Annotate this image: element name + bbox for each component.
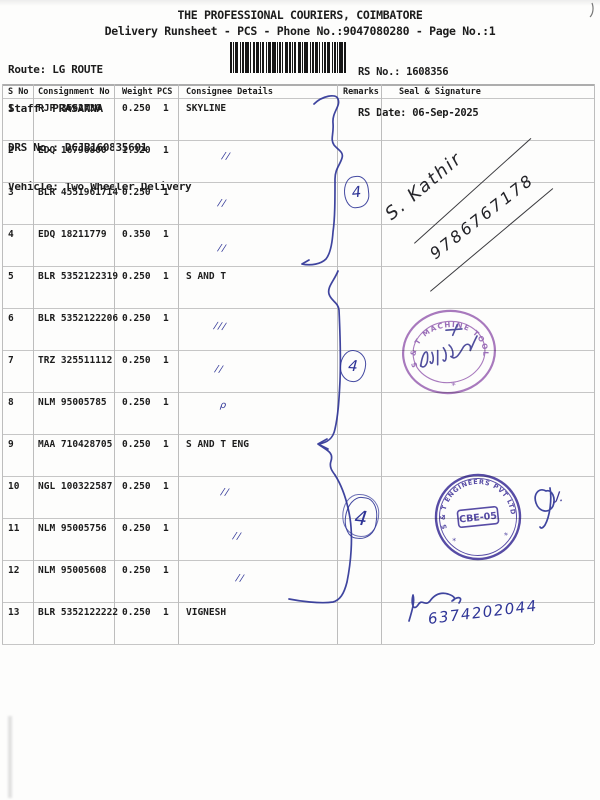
barcode-bar: [260, 42, 261, 73]
table-row: 5BLR 53521223190.2501S AND T: [0, 266, 600, 308]
table-row: 6BLR 53521222060.2501///: [0, 308, 600, 350]
column-header: Remarks: [343, 87, 379, 97]
barcode-bar: [230, 42, 232, 73]
table-row: 11NLM 950057560.2501//: [0, 518, 600, 560]
ditto-mark: //: [217, 243, 227, 255]
barcode-bar: [298, 42, 301, 73]
cell-consignee: S AND T ENG: [186, 439, 249, 450]
ditto-mark: //: [214, 364, 224, 376]
cell-weight: 0.250: [122, 271, 151, 282]
barcode-bar: [332, 42, 333, 73]
cell-pcs: 1: [163, 313, 169, 324]
cell-pcs: 1: [163, 481, 169, 492]
barcode-bar: [233, 42, 234, 73]
cell-weight: 1.320: [122, 145, 151, 156]
cell-weight: 0.250: [122, 607, 151, 618]
cell-pcs: 1: [163, 103, 169, 114]
barcode-bar: [282, 42, 283, 73]
cell-sno: 12: [8, 565, 19, 576]
cell-sno: 13: [8, 607, 19, 618]
cell-weight: 0.250: [122, 481, 151, 492]
cell-consignment: BLR 5352122206: [38, 313, 118, 324]
cell-pcs: 1: [163, 187, 169, 198]
cell-consignment: NLM 95005608: [38, 565, 107, 576]
barcode-bar: [240, 42, 241, 73]
table-row: 8NLM 950057850.2501ρ: [0, 392, 600, 434]
barcode-bar: [250, 42, 251, 73]
barcode-bar: [302, 42, 303, 73]
ditto-mark: //: [235, 573, 245, 585]
cell-pcs: 1: [163, 271, 169, 282]
barcode-bar: [334, 42, 336, 73]
barcode-bar: [272, 42, 276, 73]
barcode-bar: [268, 42, 271, 73]
column-header: PCS: [157, 87, 172, 97]
barcode-bar: [327, 42, 330, 73]
cell-sno: 2: [8, 145, 14, 156]
barcode-bar: [304, 42, 308, 73]
cell-consignment: NGL 100322587: [38, 481, 112, 492]
cell-pcs: 1: [163, 355, 169, 366]
table-row: 7TRZ 3255111120.2501//: [0, 350, 600, 392]
cell-consignment: MAA 710428705: [38, 439, 112, 450]
table-row: 12NLM 950056080.2501//: [0, 560, 600, 602]
cell-pcs: 1: [163, 523, 169, 534]
cell-pcs: 1: [163, 397, 169, 408]
page-subtitle: Delivery Runsheet - PCS - Phone No.:9047…: [0, 24, 600, 38]
scanned-delivery-runsheet: THE PROFESSIONAL COURIERS, COIMBATORE De…: [0, 0, 600, 800]
cell-weight: 0.250: [122, 313, 151, 324]
cell-pcs: 1: [163, 229, 169, 240]
barcode-bar: [285, 42, 288, 73]
cell-consignment: BLR 5352122319: [38, 271, 118, 282]
cell-pcs: 1: [163, 565, 169, 576]
column-header: Seal & Signature: [399, 87, 481, 97]
ditto-mark: //: [220, 487, 230, 499]
cell-weight: 0.250: [122, 187, 151, 198]
barcode-bar: [242, 42, 244, 73]
barcode-bar: [262, 42, 264, 73]
ditto-mark: //: [217, 198, 227, 210]
scan-edge-shadow: [8, 716, 12, 798]
cell-sno: 1: [8, 103, 14, 114]
cell-sno: 5: [8, 271, 14, 282]
cell-consignment: EDQ 18211779: [38, 229, 107, 240]
barcode-image: [230, 42, 357, 73]
barcode-bar: [253, 42, 255, 73]
barcode-bar: [337, 42, 338, 73]
cell-pcs: 1: [163, 145, 169, 156]
grid-line-horizontal: [2, 84, 594, 86]
cell-weight: 0.350: [122, 229, 151, 240]
ditto-mark: //: [221, 151, 231, 163]
cell-weight: 0.250: [122, 523, 151, 534]
cell-weight: 0.250: [122, 397, 151, 408]
ditto-mark: //: [232, 531, 242, 543]
cell-sno: 9: [8, 439, 14, 450]
barcode-bar: [245, 42, 249, 73]
barcode-bar: [294, 42, 296, 73]
cell-consignee: SKYLINE: [186, 103, 226, 114]
barcode-bar: [310, 42, 311, 73]
barcode-bar: [344, 42, 346, 73]
table-row: 2EDQ 167968001.3201//: [0, 140, 600, 182]
cell-sno: 6: [8, 313, 14, 324]
barcode-bar: [277, 42, 278, 73]
cell-consignment: TRZ 325511112: [38, 355, 112, 366]
cell-sno: 8: [8, 397, 14, 408]
column-header: Consignee Details: [186, 87, 273, 97]
cell-consignment: NLM 95005785: [38, 397, 107, 408]
table-row: 9MAA 7104287050.2501S AND T ENG: [0, 434, 600, 476]
column-header: S No: [8, 87, 28, 97]
cell-weight: 0.250: [122, 439, 151, 450]
column-header: Weight: [122, 87, 153, 97]
cell-pcs: 1: [163, 607, 169, 618]
barcode-bar: [324, 42, 326, 73]
barcode-bar: [315, 42, 318, 73]
column-header: Consignment No: [38, 87, 110, 97]
barcode-bar: [339, 42, 343, 73]
cell-consignment: BLR 5352122222: [38, 607, 118, 618]
cell-weight: 0.250: [122, 355, 151, 366]
cell-pcs: 1: [163, 439, 169, 450]
barcode-bar: [292, 42, 293, 73]
cell-consignment: NLM 95005756: [38, 523, 107, 534]
barcode-bar: [322, 42, 323, 73]
barcode-bar: [319, 42, 320, 73]
route-line: Route: LG ROUTE: [8, 63, 191, 76]
cell-consignee: S AND T: [186, 271, 226, 282]
barcode-bar: [235, 42, 238, 73]
page-title: THE PROFESSIONAL COURIERS, COIMBATORE: [0, 8, 600, 22]
cell-sno: 4: [8, 229, 14, 240]
cell-consignment: RJP 3662730: [38, 103, 101, 114]
barcode-bar: [312, 42, 314, 73]
table-row: 10NGL 1003225870.2501//: [0, 476, 600, 518]
barcode-bar: [289, 42, 291, 73]
cell-consignment: BLR 4551961714: [38, 187, 118, 198]
cell-weight: 0.250: [122, 103, 151, 114]
barcode-bar: [256, 42, 259, 73]
cell-sno: 7: [8, 355, 14, 366]
ditto-mark: ρ: [219, 400, 227, 412]
barcode-bar: [266, 42, 267, 73]
cell-sno: 11: [8, 523, 19, 534]
ditto-mark: ///: [213, 320, 227, 332]
cell-consignee: VIGNESH: [186, 607, 226, 618]
rs-no-line: RS No.: 1608356: [358, 66, 478, 80]
barcode-bar: [279, 42, 281, 73]
table-row: 4EDQ 182117790.3501//: [0, 224, 600, 266]
cell-weight: 0.250: [122, 565, 151, 576]
table-row: 1RJP 36627300.2501SKYLINE: [0, 98, 600, 140]
cell-sno: 10: [8, 481, 19, 492]
cell-sno: 3: [8, 187, 14, 198]
cell-consignment: EDQ 16796800: [38, 145, 107, 156]
grid-line-horizontal: [2, 644, 594, 645]
